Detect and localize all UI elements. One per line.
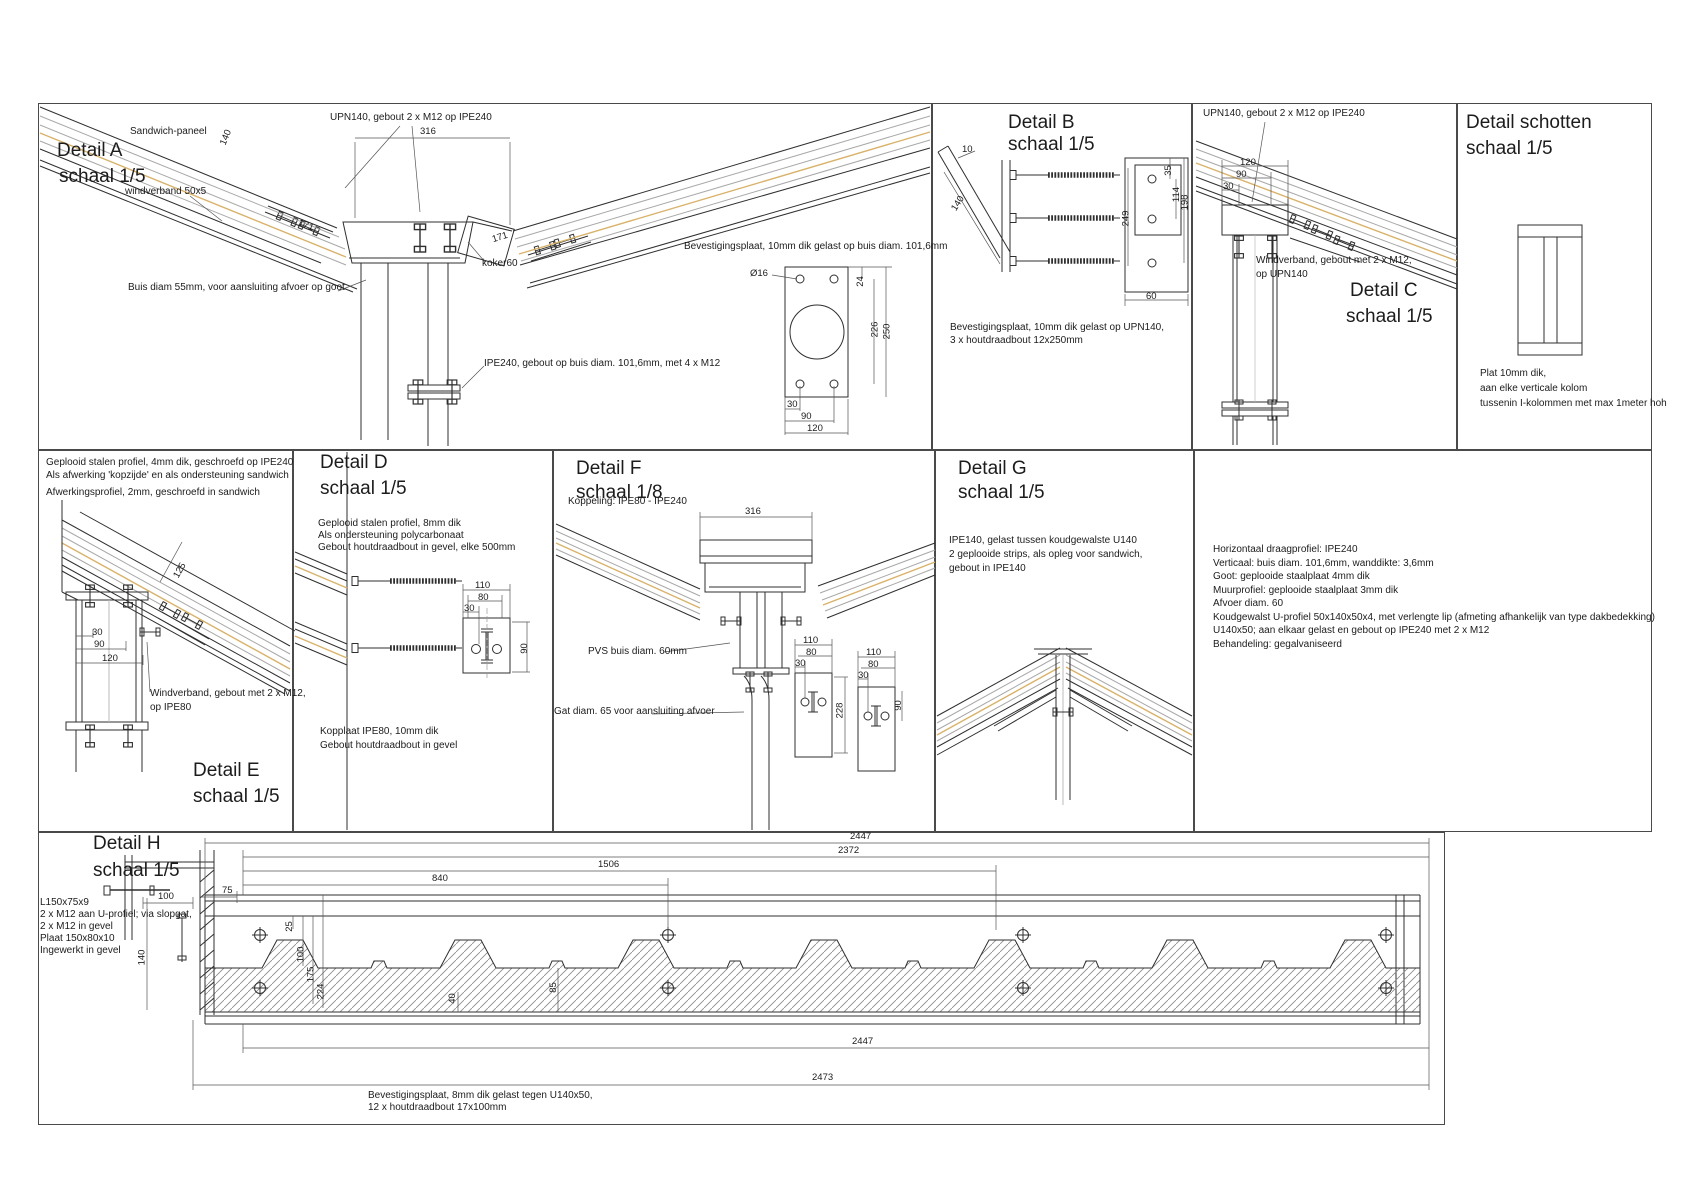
label-h-note-5: Ingewerkt in gevel bbox=[40, 945, 121, 956]
label-b-plaat-2: 3 x houtdraadbout 12x250mm bbox=[950, 335, 1083, 346]
panel-detail-f bbox=[553, 450, 935, 832]
spec-line-verticaal: Verticaal: buis diam. 101,6mm, wanddikte… bbox=[1213, 558, 1434, 569]
label-schotten-3: tussenin I-kolommen met max 1meter hoh bbox=[1480, 398, 1667, 409]
dim-plate-90: 90 bbox=[801, 411, 812, 422]
dim-plate-dia16: Ø16 bbox=[750, 268, 768, 279]
label-f-gat-65: Gat diam. 65 voor aansluiting afvoer bbox=[554, 706, 715, 717]
dim-d-90: 90 bbox=[519, 643, 530, 654]
dim-f-316: 316 bbox=[745, 506, 761, 517]
dim-b-198: 198 bbox=[1179, 195, 1190, 211]
detail-a-scale: schaal 1/5 bbox=[59, 166, 146, 188]
label-c-windverband-1: Windverband, gebout met 2 x M12, bbox=[1256, 255, 1412, 266]
dim-h-25: 25 bbox=[284, 921, 295, 932]
label-c-windverband-2: op UPN140 bbox=[1256, 269, 1308, 280]
panel-detail-d bbox=[293, 450, 553, 832]
detail-g-scale: schaal 1/5 bbox=[958, 482, 1045, 504]
panel-detail-g bbox=[935, 450, 1194, 832]
label-e-note-1: Geplooid stalen profiel, 4mm dik, geschr… bbox=[46, 457, 293, 468]
label-f-koppeling: Koppeling: IPE80 - IPE240 bbox=[568, 496, 687, 507]
dim-plate-250: 250 bbox=[881, 324, 892, 340]
label-e-note-3: Afwerkingsprofiel, 2mm, geschroefd in sa… bbox=[46, 487, 260, 498]
panel-detail-a bbox=[38, 103, 932, 450]
label-h-note-4: Plaat 150x80x10 bbox=[40, 933, 115, 944]
detail-a-title: Detail A bbox=[57, 140, 122, 162]
label-d-kopplaat-2: Gebout houtdraadbout in gevel bbox=[320, 740, 457, 751]
dim-h-40: 40 bbox=[447, 993, 458, 1004]
label-h-bevestigingsplaat-1: Bevestigingsplaat, 8mm dik gelast tegen … bbox=[368, 1090, 593, 1101]
label-upn140-c: UPN140, gebout 2 x M12 op IPE240 bbox=[1203, 108, 1365, 119]
panel-detail-h bbox=[38, 832, 1445, 1125]
detail-h-title: Detail H bbox=[93, 833, 161, 855]
dim-plate-226: 226 bbox=[869, 322, 880, 338]
label-d-note-1: Geplooid stalen profiel, 8mm dik bbox=[318, 518, 461, 529]
detail-e-title: Detail E bbox=[193, 760, 260, 782]
panel-detail-c bbox=[1192, 103, 1457, 450]
dim-h-2473: 2473 bbox=[812, 1072, 833, 1083]
label-windverband-50x5: windverband 50x5 bbox=[125, 186, 206, 197]
dim-c-90: 90 bbox=[1236, 169, 1247, 180]
label-f-pvs-buis: PVS buis diam. 60mm bbox=[588, 646, 687, 657]
dim-h-2447-bottom: 2447 bbox=[852, 1036, 873, 1047]
dim-b-249: 249 bbox=[1120, 211, 1131, 227]
label-e-windverband-1: Windverband, gebout met 2 x M12, bbox=[150, 688, 306, 699]
label-d-kopplaat-1: Kopplaat IPE80, 10mm dik bbox=[320, 726, 438, 737]
label-g-note-1: IPE140, gelast tussen koudgewalste U140 bbox=[949, 535, 1137, 546]
detail-c-scale: schaal 1/5 bbox=[1346, 306, 1433, 328]
dim-f2-80: 80 bbox=[868, 659, 879, 670]
dim-f1-80: 80 bbox=[806, 647, 817, 658]
dim-h-2447-top: 2447 bbox=[850, 831, 871, 842]
dim-e-90: 90 bbox=[94, 639, 105, 650]
dim-d-110: 110 bbox=[475, 580, 490, 591]
dim-h-85: 85 bbox=[548, 982, 559, 993]
dim-plate-30: 30 bbox=[787, 399, 798, 410]
label-sandwich-paneel: Sandwich-paneel bbox=[130, 126, 207, 137]
dim-h-2372: 2372 bbox=[838, 845, 859, 856]
spec-line-muurprofiel: Muurprofiel: geplooide staalplaat 3mm di… bbox=[1213, 585, 1398, 596]
spec-line-u140x50: U140x50; aan elkaar gelast en gebout op … bbox=[1213, 625, 1489, 636]
label-b-plaat-1: Bevestigingsplaat, 10mm dik gelast op UP… bbox=[950, 322, 1164, 333]
label-e-note-2: Als afwerking 'kopzijde' en als onderste… bbox=[46, 470, 289, 481]
detail-h-scale: schaal 1/5 bbox=[93, 860, 180, 882]
dim-c-30: 30 bbox=[1223, 181, 1234, 192]
detail-b-scale: schaal 1/5 bbox=[1008, 134, 1095, 156]
label-g-note-2: 2 geplooide strips, als opleg voor sandw… bbox=[949, 549, 1142, 560]
dim-e-30: 30 bbox=[92, 627, 103, 638]
dim-b-60: 60 bbox=[1146, 291, 1157, 302]
dim-plate-24: 24 bbox=[855, 276, 866, 287]
drawing-sheet: Detail A schaal 1/5 Sandwich-paneel 140 … bbox=[0, 0, 1684, 1191]
dim-d-30: 30 bbox=[464, 603, 475, 614]
dim-f1-30: 30 bbox=[795, 658, 806, 669]
dim-e-120: 120 bbox=[102, 653, 118, 664]
dim-h-175: 175 bbox=[305, 967, 316, 983]
label-ipe240-bolted: IPE240, gebout op buis diam. 101,6mm, me… bbox=[484, 358, 720, 369]
detail-b-title: Detail B bbox=[1008, 112, 1075, 134]
spec-line-afvoer: Afvoer diam. 60 bbox=[1213, 598, 1283, 609]
label-koker60: koker60 bbox=[482, 258, 518, 269]
dim-f2-110: 110 bbox=[866, 647, 881, 658]
dim-h-140: 140 bbox=[136, 950, 147, 966]
spec-line-draagprofiel: Horizontaal draagprofiel: IPE240 bbox=[1213, 544, 1358, 555]
label-buis-55: Buis diam 55mm, voor aansluiting afvoer … bbox=[128, 282, 345, 293]
label-bevestigingsplaat-buis: Bevestigingsplaat, 10mm dik gelast op bu… bbox=[684, 241, 947, 252]
spec-line-behandeling: Behandeling: gegalvaniseerd bbox=[1213, 639, 1342, 650]
dim-h-100b: 100 bbox=[295, 947, 306, 963]
label-e-windverband-2: op IPE80 bbox=[150, 702, 191, 713]
label-d-note-2: Als ondersteuning polycarbonaat bbox=[318, 530, 464, 541]
detail-schotten-scale: schaal 1/5 bbox=[1466, 138, 1553, 160]
dim-h-840: 840 bbox=[432, 873, 448, 884]
dim-h-100: 100 bbox=[158, 891, 174, 902]
dim-b-10: 10 bbox=[962, 144, 973, 155]
label-schotten-2: aan elke verticale kolom bbox=[1480, 383, 1587, 394]
label-d-note-3: Gebout houtdraadbout in gevel, elke 500m… bbox=[318, 542, 515, 553]
label-h-note-2: 2 x M12 aan U-profiel; via slopgat, bbox=[40, 909, 192, 920]
detail-c-title: Detail C bbox=[1350, 280, 1418, 302]
detail-d-title: Detail D bbox=[320, 452, 388, 474]
dim-c-120: 120 bbox=[1240, 157, 1256, 168]
spec-line-u-profiel: Koudgewalst U-profiel 50x140x50x4, met v… bbox=[1213, 612, 1655, 623]
detail-f-title: Detail F bbox=[576, 458, 641, 480]
detail-schotten-title: Detail schotten bbox=[1466, 112, 1592, 134]
dim-b-35: 35 bbox=[1163, 165, 1174, 176]
label-h-note-3: 2 x M12 in gevel bbox=[40, 921, 113, 932]
label-upn140-a: UPN140, gebout 2 x M12 op IPE240 bbox=[330, 112, 492, 123]
dim-d-80: 80 bbox=[478, 592, 489, 603]
detail-g-title: Detail G bbox=[958, 458, 1027, 480]
detail-e-scale: schaal 1/5 bbox=[193, 786, 280, 808]
dim-f2-90: 90 bbox=[893, 700, 904, 711]
dim-f1-228: 228 bbox=[834, 703, 845, 719]
dim-h-75: 75 bbox=[222, 885, 233, 896]
label-schotten-1: Plat 10mm dik, bbox=[1480, 368, 1546, 379]
dim-h-1506: 1506 bbox=[598, 859, 619, 870]
detail-d-scale: schaal 1/5 bbox=[320, 478, 407, 500]
dim-f1-110: 110 bbox=[803, 635, 818, 646]
spec-line-goot: Goot: geplooide staalplaat 4mm dik bbox=[1213, 571, 1370, 582]
label-g-note-3: gebout in IPE140 bbox=[949, 563, 1026, 574]
label-h-note-1: L150x75x9 bbox=[40, 897, 89, 908]
dim-a-316: 316 bbox=[420, 126, 436, 137]
dim-plate-120: 120 bbox=[807, 423, 823, 434]
dim-h-224: 224 bbox=[315, 984, 326, 1000]
label-h-bevestigingsplaat-2: 12 x houtdraadbout 17x100mm bbox=[368, 1102, 506, 1113]
dim-f2-30: 30 bbox=[858, 670, 869, 681]
